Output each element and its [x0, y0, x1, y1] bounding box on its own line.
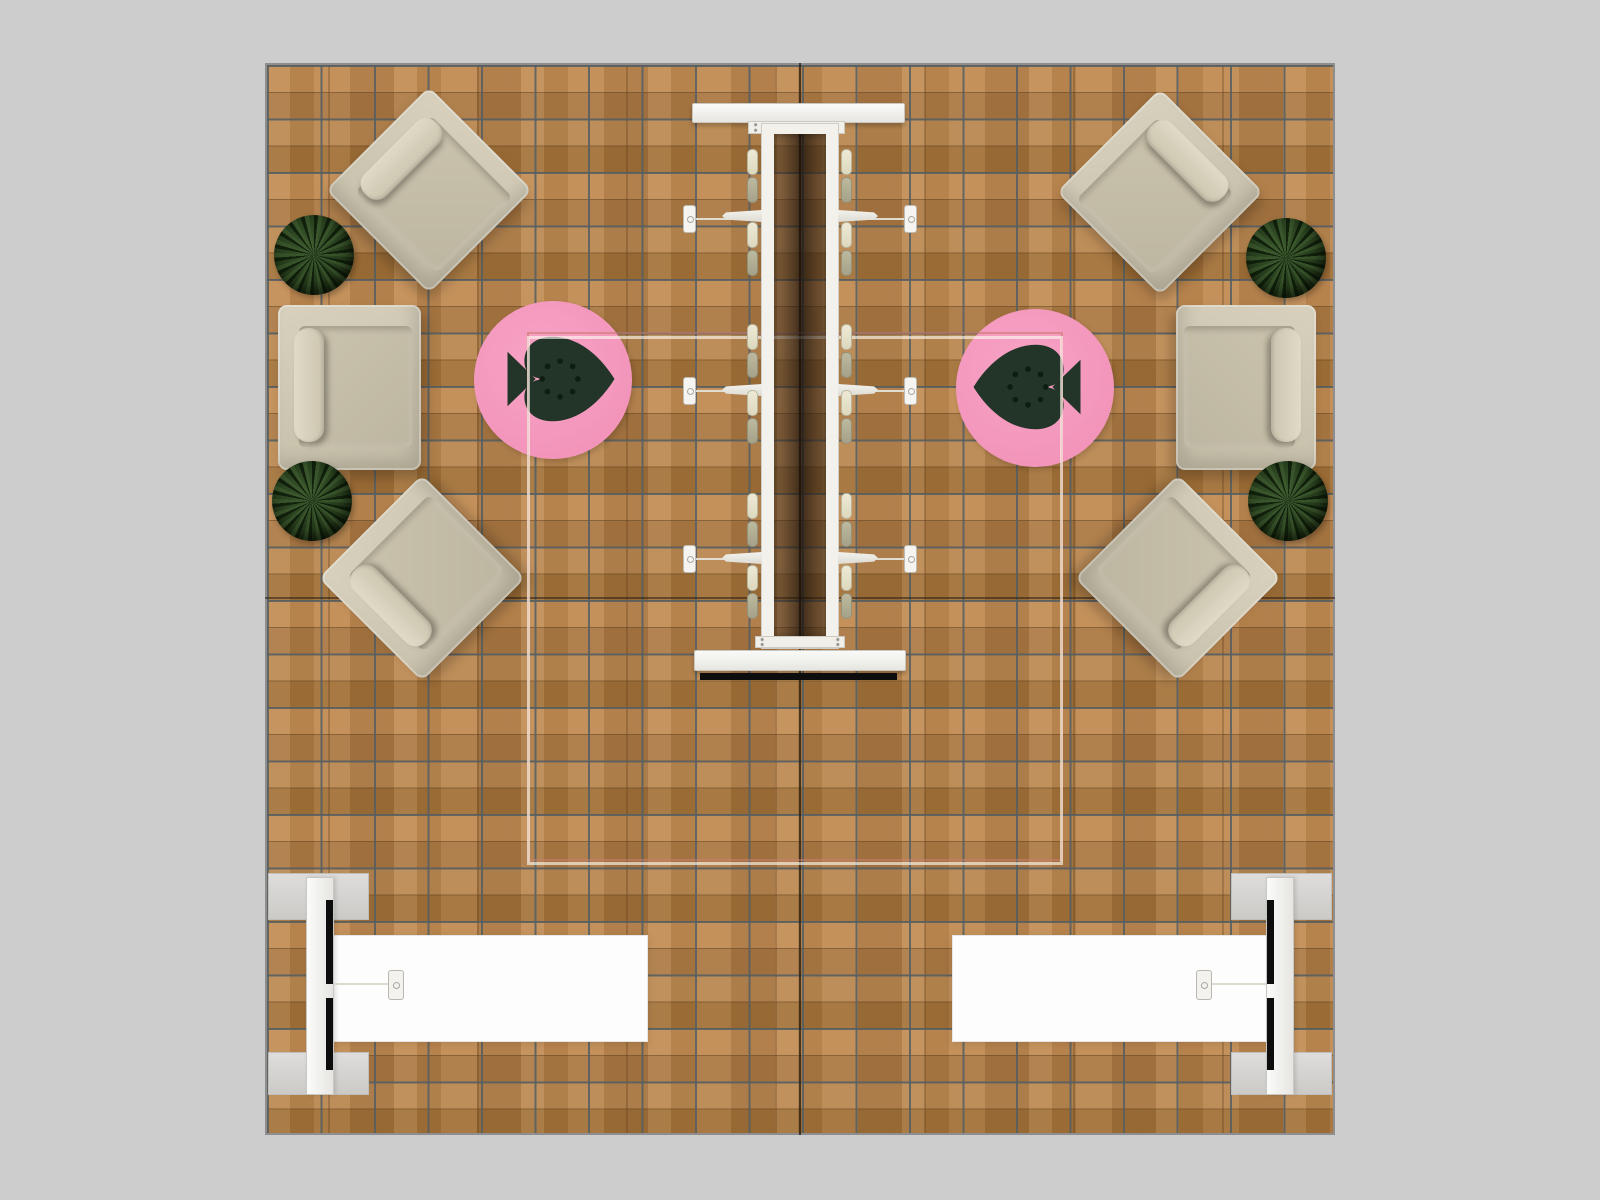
stool [747, 352, 758, 378]
stool [747, 521, 758, 547]
stool [747, 324, 758, 350]
presentation-counter-right [952, 935, 1267, 1042]
stool [747, 149, 758, 175]
presentation-counter-left [333, 935, 648, 1042]
wall-bracket [683, 377, 696, 405]
wall-bracket [904, 205, 917, 233]
stool [747, 493, 758, 519]
wall-bracket [904, 377, 917, 405]
stool [841, 177, 852, 203]
stool [841, 390, 852, 416]
edge-on-display [326, 900, 333, 984]
armchair-cushion [1271, 328, 1300, 442]
stool [747, 250, 758, 276]
booth-floorplan-canvas [0, 0, 1600, 1200]
stool [841, 222, 852, 248]
stool [841, 324, 852, 350]
edge-on-display [1267, 900, 1274, 984]
wall-bracket [904, 545, 917, 573]
stool [841, 493, 852, 519]
shrub-bottom-left [272, 461, 352, 541]
display-stand [388, 970, 404, 1000]
stool [747, 593, 758, 619]
display-stand [1196, 970, 1212, 1000]
counter-bottom-panel [694, 650, 906, 671]
shrub-bottom-right [1248, 461, 1328, 541]
shrub-top-left [274, 215, 354, 295]
armchair-mid-right [1176, 305, 1316, 470]
stool [841, 149, 852, 175]
edge-on-display [326, 998, 333, 1070]
stool [747, 565, 758, 591]
stool [841, 418, 852, 444]
stool [747, 177, 758, 203]
stool [841, 521, 852, 547]
stand-connector-line [1210, 983, 1266, 985]
stool [747, 222, 758, 248]
stool [841, 352, 852, 378]
stool [841, 250, 852, 276]
shrub-top-right [1246, 218, 1326, 298]
stool [747, 418, 758, 444]
stool [747, 390, 758, 416]
stand-connector-line [334, 983, 390, 985]
armchair-mid-left [278, 305, 421, 470]
armchair-cushion [294, 328, 324, 442]
counter-bottom-connector-plate [755, 636, 845, 648]
stool [841, 593, 852, 619]
wall-bracket [683, 545, 696, 573]
counter-rail-frame [762, 124, 838, 648]
wall-bracket [683, 205, 696, 233]
stool [841, 565, 852, 591]
edge-on-display [1267, 998, 1274, 1070]
counter-top-panel [692, 103, 905, 123]
counter-display-strip [700, 673, 897, 680]
